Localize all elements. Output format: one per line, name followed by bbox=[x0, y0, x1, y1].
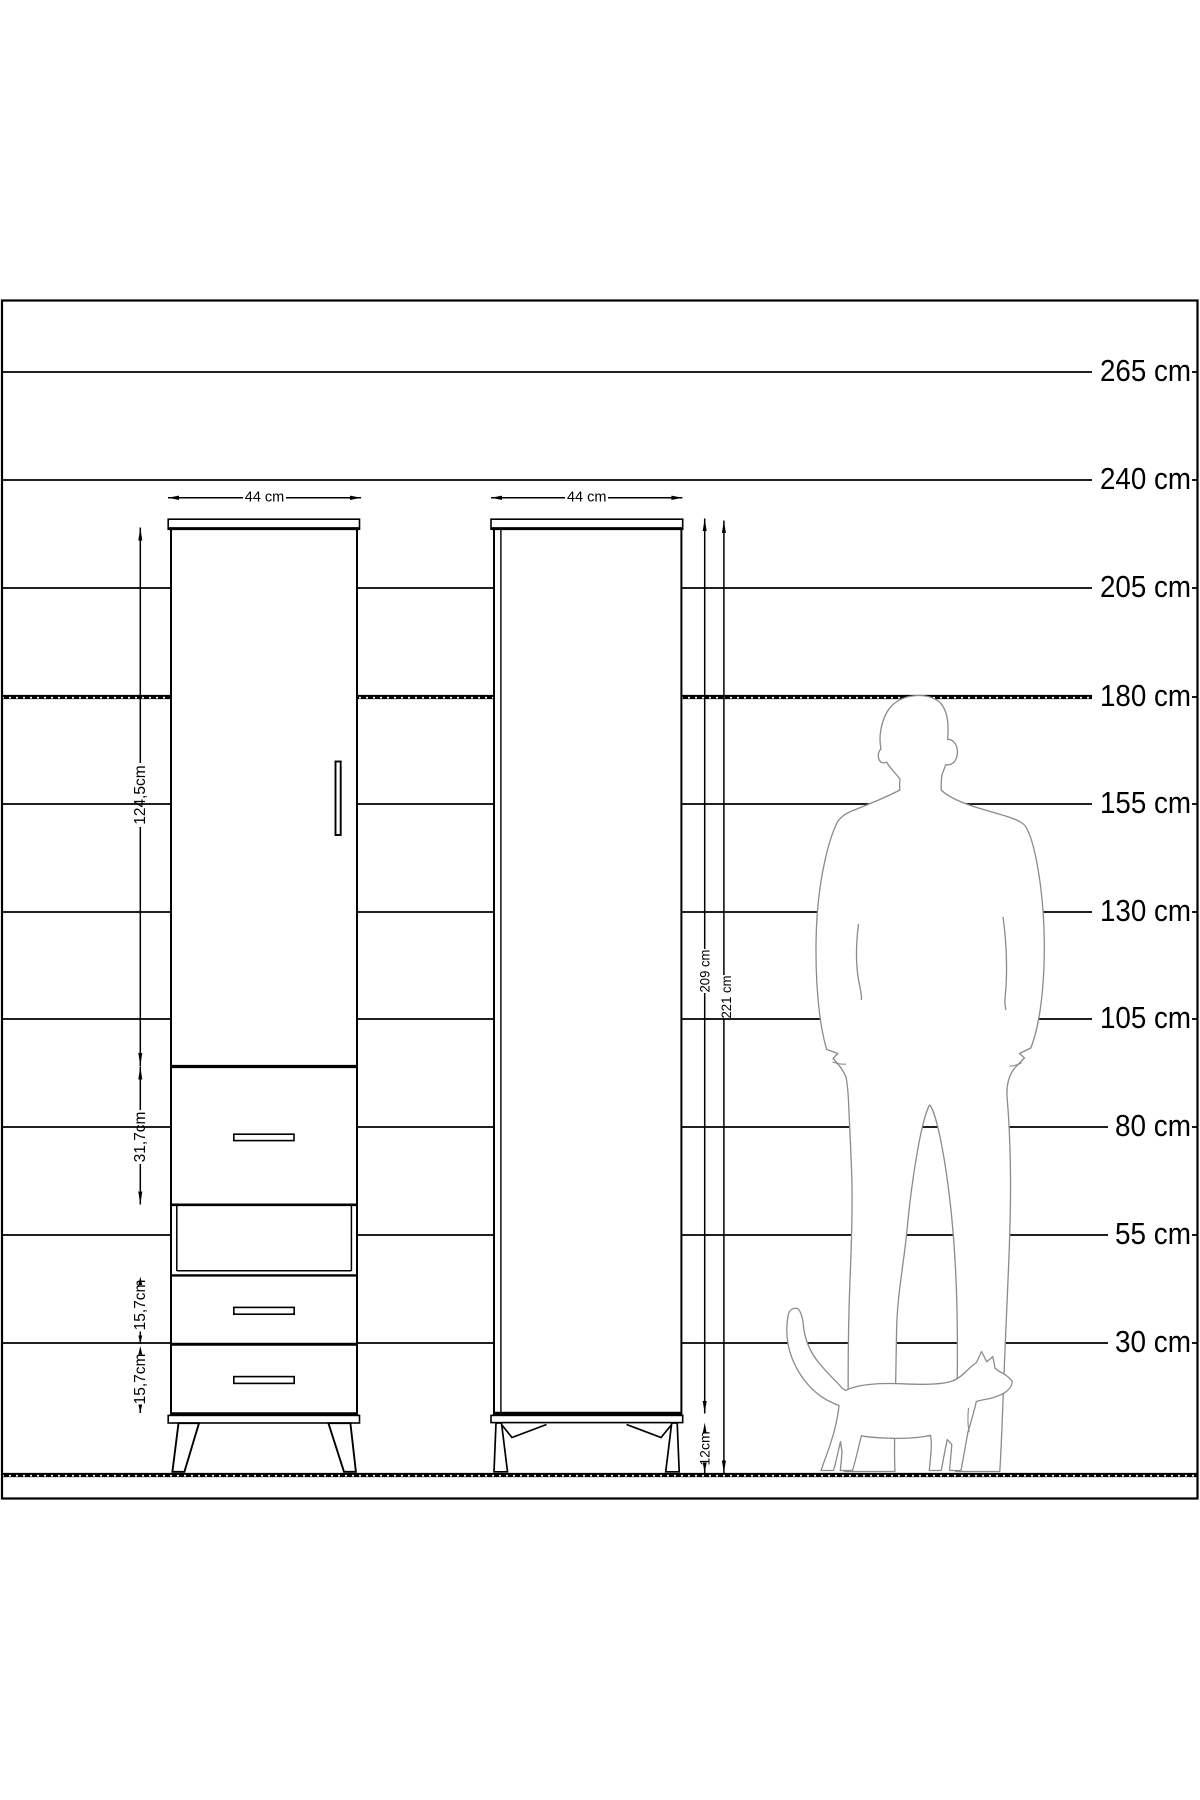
svg-text:12cm: 12cm bbox=[697, 1431, 713, 1465]
svg-text:80 cm: 80 cm bbox=[1115, 1109, 1191, 1143]
svg-text:209 cm: 209 cm bbox=[697, 950, 713, 993]
svg-text:180 cm: 180 cm bbox=[1100, 679, 1191, 713]
svg-text:44 cm: 44 cm bbox=[567, 489, 607, 505]
svg-text:55 cm: 55 cm bbox=[1115, 1217, 1191, 1251]
svg-text:15,7cm: 15,7cm bbox=[132, 1280, 149, 1331]
svg-text:221 cm: 221 cm bbox=[718, 976, 734, 1019]
svg-text:44 cm: 44 cm bbox=[245, 489, 285, 505]
svg-text:155 cm: 155 cm bbox=[1100, 786, 1191, 820]
svg-text:31,7cm: 31,7cm bbox=[132, 1112, 149, 1163]
svg-text:15,7cm: 15,7cm bbox=[132, 1354, 149, 1405]
svg-text:265 cm: 265 cm bbox=[1100, 354, 1191, 388]
svg-text:130 cm: 130 cm bbox=[1100, 894, 1191, 928]
svg-text:105 cm: 105 cm bbox=[1100, 1001, 1191, 1035]
svg-text:205 cm: 205 cm bbox=[1100, 570, 1191, 604]
svg-text:124,5cm: 124,5cm bbox=[132, 765, 149, 824]
svg-text:240 cm: 240 cm bbox=[1100, 462, 1191, 496]
svg-text:30 cm: 30 cm bbox=[1115, 1325, 1191, 1359]
